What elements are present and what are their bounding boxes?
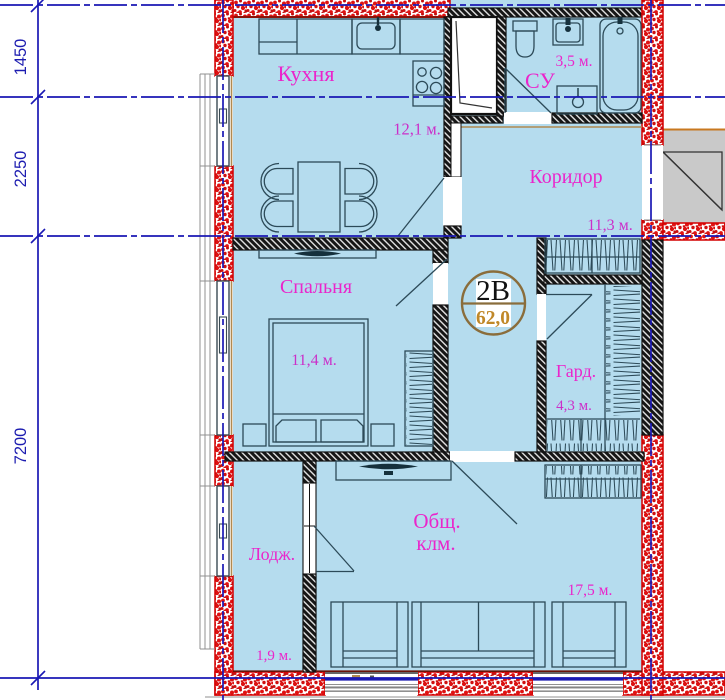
svg-text:1450: 1450: [12, 39, 30, 76]
svg-text:Общ.: Общ.: [413, 509, 460, 533]
svg-text:11,4 м.: 11,4 м.: [291, 352, 337, 369]
svg-text:Спальня: Спальня: [280, 276, 352, 298]
svg-text:Лодж.: Лодж.: [249, 544, 295, 564]
svg-text:СУ: СУ: [525, 68, 555, 93]
svg-text:Кухня: Кухня: [278, 61, 335, 86]
svg-text:7200: 7200: [12, 428, 30, 465]
svg-text:3,5 м.: 3,5 м.: [556, 53, 593, 70]
svg-text:12,1 м.: 12,1 м.: [393, 120, 441, 139]
svg-text:Гард.: Гард.: [556, 361, 596, 381]
svg-text:Коридор: Коридор: [529, 166, 602, 188]
svg-text:4,3 м.: 4,3 м.: [556, 398, 592, 414]
svg-text:2250: 2250: [12, 151, 30, 188]
svg-text:62,0: 62,0: [476, 307, 510, 329]
svg-text:клм.: клм.: [416, 531, 455, 555]
svg-text:11,3 м.: 11,3 м.: [587, 217, 633, 234]
svg-text:17,5 м.: 17,5 м.: [568, 582, 613, 599]
svg-text:2В: 2В: [476, 275, 510, 307]
svg-text:1,9 м.: 1,9 м.: [256, 648, 292, 664]
